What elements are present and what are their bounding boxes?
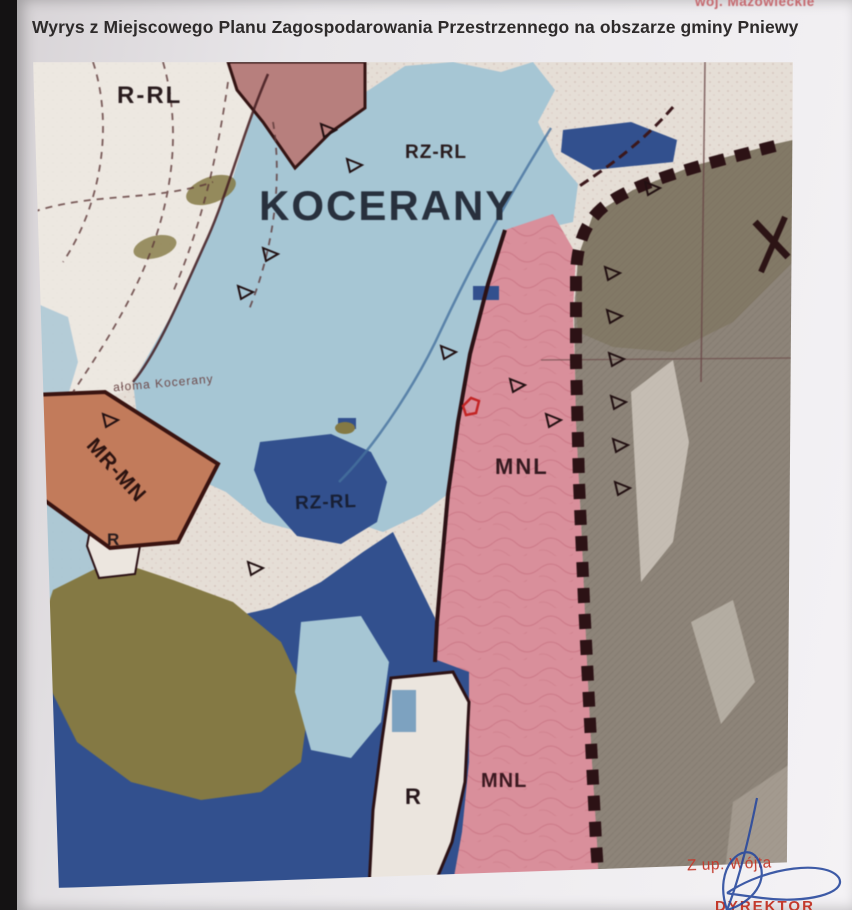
map-label-r-bottom: R [405,784,421,810]
signature-block: Z up. Wójta DYREKTOR [657,838,852,910]
zoning-map: R-RL RZ-RL KOCERANY ałoma Kocerany MR-MN… [33,62,793,888]
map-label-mnl-right: MNL [495,454,549,480]
map-label-r-rl: R-RL [117,82,182,110]
enclave-blue-patch [392,690,416,732]
map-label-rz-rl-center: RZ-RL [295,491,358,515]
pen-signature [657,778,852,910]
page-title: Wyrys z Miejscowego Planu Zagospodarowan… [32,17,847,38]
map-label-rz-rl-top: RZ-RL [405,142,467,164]
map-label-r-left: R [107,530,119,550]
olive-patch-3 [335,422,355,434]
photo-backdrop: { "page": { "corner_note": "woj. Mazowie… [0,0,852,910]
document-page: woj. Mazowieckie Wyrys z Miejscowego Pla… [17,0,852,910]
map-label-mnl-bottom: MNL [481,770,527,793]
map-label-kocerany: KOCERANY [259,182,515,230]
voivodeship-note: woj. Mazowieckie [695,0,815,9]
gray-hatch-texture [574,140,793,888]
